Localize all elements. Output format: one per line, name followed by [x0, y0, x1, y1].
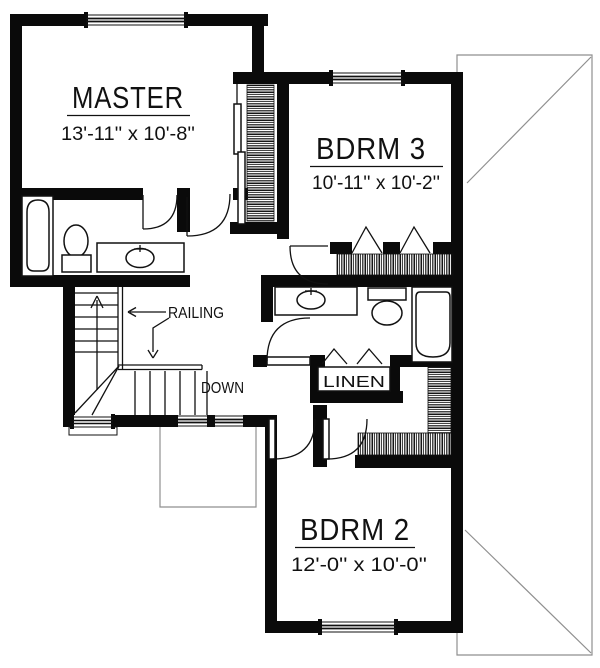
- bdrm2-room-label: BDRM 2: [300, 512, 410, 547]
- bdrm3-room-label: BDRM 3: [316, 131, 426, 166]
- master-window: [84, 12, 188, 28]
- railing-callout-arrows: [128, 308, 169, 359]
- master-bathtub: [22, 196, 53, 276]
- hall-bathtub: [412, 287, 452, 362]
- floor-plan-drawing: MASTER 13'-11'' x 10'-8'' BDRM 3 10'-11'…: [0, 0, 600, 668]
- floor-plan: MASTER 13'-11'' x 10'-8'' BDRM 3 10'-11'…: [0, 0, 600, 668]
- bdrm2-closet-shelving-side: [428, 367, 451, 433]
- master-room-label: MASTER: [72, 80, 184, 115]
- linen-label: LINEN: [323, 374, 385, 391]
- bdrm3-closet-shelving: [337, 254, 453, 275]
- master-closet-sliding-doors: [234, 84, 245, 224]
- master-room-dims: 13'-11'' x 10'-8'': [61, 124, 195, 145]
- stair-bay-window: [69, 414, 117, 435]
- hall-sink-vanity: [275, 287, 357, 315]
- master-closet-shelving: [247, 85, 274, 221]
- railing-label: RAILING: [168, 305, 224, 322]
- stair-direction-arrow: [91, 296, 103, 390]
- bdrm3-room-dims: 10'-11'' x 10'-2'': [312, 173, 440, 194]
- entry-roof-outline: [160, 427, 256, 507]
- garage-roof-outline: [457, 55, 592, 655]
- hall-toilet: [368, 288, 406, 325]
- master-entry-door: [187, 194, 230, 236]
- master-sink-vanity: [97, 243, 184, 272]
- master-toilet: [62, 225, 91, 272]
- master-bath-door: [143, 195, 177, 229]
- stair-railing: [118, 287, 202, 370]
- bdrm2-closet-shelving-front: [358, 433, 451, 455]
- linen-bifold-doors: [322, 349, 382, 364]
- bdrm2-window: [318, 619, 398, 635]
- hall-bath-door: [267, 318, 310, 365]
- down-label: DOWN: [201, 380, 244, 397]
- bdrm2-room-dims: 12'-0'' x 10'-0'': [291, 555, 427, 576]
- bdrm3-window: [329, 70, 405, 86]
